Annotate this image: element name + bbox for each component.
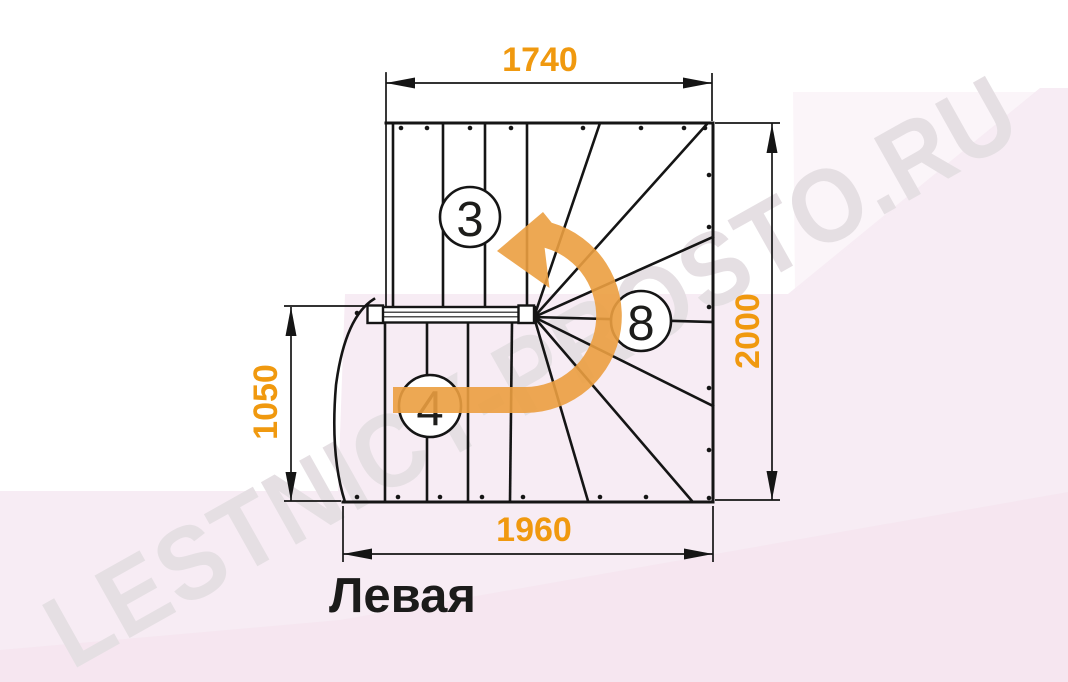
left-newel-post (368, 306, 384, 324)
dimension-label-right: 2000 (729, 293, 767, 369)
right-newel-post (519, 306, 535, 324)
arrowhead-right (683, 78, 712, 89)
landing-step (368, 306, 536, 324)
dimension-top: 1740 (386, 41, 712, 121)
stair-plan-drawing: LESTNICY-PROSTO.RU (0, 0, 1068, 682)
badge-number-upper: 3 (456, 193, 483, 247)
arrowhead-up (286, 307, 297, 336)
arrowhead-left (386, 78, 415, 89)
drawing-title: Левая (329, 569, 476, 623)
badge-upper-flight: 3 (440, 187, 500, 247)
arrowhead-up (767, 124, 778, 153)
dimension-label-left: 1050 (247, 364, 285, 440)
dimension-label-top: 1740 (502, 41, 578, 79)
stair-plan-page: LESTNICY-PROSTO.RU (0, 0, 1068, 682)
dimension-label-bottom: 1960 (496, 511, 572, 549)
badge-number-winders: 8 (627, 297, 654, 351)
